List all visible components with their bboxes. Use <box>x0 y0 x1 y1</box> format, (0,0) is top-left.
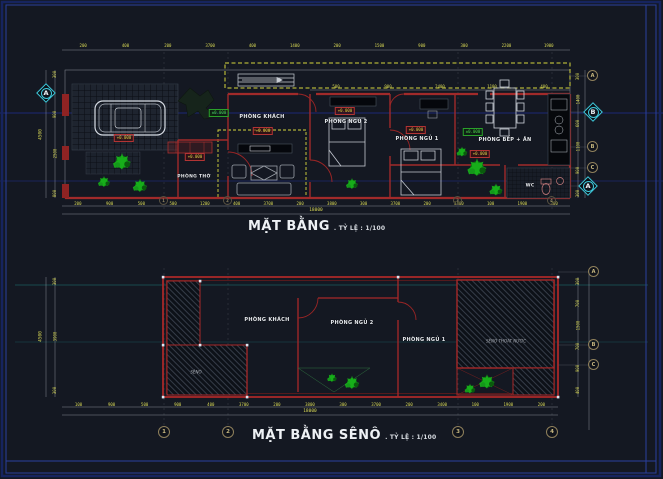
section-marker-a-right: A <box>579 177 597 195</box>
room-label-bed2: PHÒNG NGỦ 2 <box>325 119 368 125</box>
elevation-marker-zero: ±0.000 <box>209 109 229 117</box>
dim-value: 300 <box>575 278 580 285</box>
dim-total-p1: 18000 <box>62 208 570 213</box>
plan-top-title: MẶT BẰNG . TỶ LỆ : 1/100 <box>248 219 385 234</box>
dim-value: 1900 <box>528 43 570 49</box>
dim-value: 500 <box>310 84 362 90</box>
living-dashed-outline <box>218 130 306 198</box>
dim-value: 700 <box>575 300 580 307</box>
dim-value: 200 <box>284 201 316 207</box>
dim-value: 500 <box>126 201 158 207</box>
kitchen-counter <box>548 94 570 165</box>
wc-area <box>507 168 570 198</box>
room-label-kitchen: PHÒNG BẾP + ĂN <box>479 137 532 143</box>
axis-circle-a-p2: A <box>588 266 599 277</box>
axis-circle-2: 2 <box>222 426 234 438</box>
dim-value: 200 <box>525 402 558 408</box>
elevation-marker-bed2: +0.000 <box>335 107 355 115</box>
axis-circle-b-right: B <box>587 141 598 152</box>
seno-note-right: SÊNÔ THOÁT NƯỚC <box>486 339 526 344</box>
dim-value: 300 <box>443 43 485 49</box>
dim-value: 300 <box>52 387 57 394</box>
dim-value: 400 <box>194 402 227 408</box>
dim-value: 100 <box>459 402 492 408</box>
dim-value: 100 <box>62 402 95 408</box>
dim-value: 700 <box>575 343 580 350</box>
dim-value: 200 <box>411 201 443 207</box>
axis-circle-a-right: A <box>587 70 598 81</box>
dim-value: 1900 <box>492 402 525 408</box>
dim-chain-top: 2004002003700400140020015009003002200190… <box>62 43 570 49</box>
dim-value: 900 <box>575 365 580 372</box>
elevation-marker-yard: +0.000 <box>114 134 134 142</box>
dim-value: 3400 <box>426 402 459 408</box>
door-swings-top <box>228 94 410 182</box>
dim-value: 500 <box>128 402 161 408</box>
dim-chain-bottom-p1: 2009005005001200400370020038003003700200… <box>62 201 570 207</box>
yard-paving <box>86 152 140 174</box>
dim-value: 400 <box>575 387 580 394</box>
dim-value: 200 <box>316 43 358 49</box>
dim-value: 3700 <box>380 201 412 207</box>
elevation-marker-kitchen: +0.000 <box>470 150 490 158</box>
dim-chain-right-p2: 3007001500700900400 <box>573 279 582 393</box>
dim-chain-bottom-p2: 1009005009004003700200380030037002003400… <box>62 402 558 408</box>
section-letter: A <box>583 181 594 192</box>
axis-circle-3: 3 <box>452 426 464 438</box>
seno-hatch-left-block <box>167 345 247 395</box>
dim-value: 3700 <box>253 201 285 207</box>
dim-value: 1100 <box>466 84 518 90</box>
trees-top-plan <box>98 147 503 196</box>
plan-top-geometry <box>46 50 585 214</box>
seno-hatch-small <box>513 368 554 395</box>
section-letter: A <box>41 88 52 99</box>
seno-label-bed2: PHÒNG NGỦ 2 <box>331 320 374 326</box>
dim-value: 900 <box>401 43 443 49</box>
plan-title-scale: . TỶ LỆ : 1/100 <box>334 225 385 232</box>
dim-value: 900 <box>52 111 57 118</box>
dim-value: 300 <box>52 71 57 78</box>
elevation-marker-worship: +0.000 <box>185 153 205 161</box>
dim-value: 300 <box>327 402 360 408</box>
dim-value: 1500 <box>358 43 400 49</box>
dim-value: 3700 <box>189 43 231 49</box>
elevation-marker-zero-2: ±0.000 <box>463 128 483 136</box>
plan-bottom-title: MẶT BẰNG SÊNÔ . TỶ LỆ : 1/100 <box>252 428 436 443</box>
dim-value: 200 <box>62 43 104 49</box>
seno-note-left: SÊNÔ <box>190 370 201 375</box>
room-label-bed1: PHÒNG NGỦ 1 <box>396 136 439 142</box>
dim-total-p2: 18000 <box>62 409 558 414</box>
axis-circle-4-top: 4 <box>547 196 556 205</box>
dim-value: 2200 <box>485 43 527 49</box>
axis-circle-4: 4 <box>546 426 558 438</box>
elevation-marker-living: +0.000 <box>253 127 273 135</box>
dim-value: 3800 <box>316 201 348 207</box>
dim-value: 100 <box>475 201 507 207</box>
seno-label-living: PHÒNG KHÁCH <box>244 317 289 323</box>
dim-value: 1400 <box>274 43 316 49</box>
planter-boxes <box>298 368 513 395</box>
plan-title-scale: . TỶ LỆ : 1/100 <box>385 434 436 441</box>
dim-value: 200 <box>62 201 94 207</box>
dim-value: 3900 <box>52 331 57 341</box>
dim-value: 400 <box>231 43 273 49</box>
seno-interior-walls <box>247 277 398 397</box>
dim-value: 300 <box>575 73 580 80</box>
axis-circle-c-p2: C <box>588 359 599 370</box>
dim-value: 2500 <box>52 149 57 159</box>
axis-circle-3-top: 3 <box>453 196 462 205</box>
dim-value: 800 <box>52 190 57 197</box>
elevation-marker-bed1: +0.000 <box>406 126 426 134</box>
dim-value: 3700 <box>227 402 260 408</box>
dim-value: 3800 <box>293 402 326 408</box>
seno-hatch-left-strip <box>167 281 200 345</box>
section-letter: B <box>588 107 599 118</box>
dim-value: 900 <box>362 84 414 90</box>
axis-circle-2-top: 2 <box>223 196 232 205</box>
plan-title-text: MẶT BẰNG SÊNÔ <box>252 428 381 443</box>
seno-label-bed1: PHÒNG NGỦ 1 <box>403 337 446 343</box>
axis-circle-b-p2: B <box>588 339 599 350</box>
dim-value: 900 <box>161 402 194 408</box>
dim-value: 3700 <box>360 402 393 408</box>
entry-steps <box>238 74 294 86</box>
room-label-worship: PHÒNG THỜ <box>177 175 210 180</box>
dim-left-total-p2: 4500 <box>39 326 44 348</box>
dim-value: 1200 <box>189 201 221 207</box>
dim-chain-left-p2: 3003900300 <box>50 279 59 393</box>
altar <box>168 142 212 153</box>
axis-circle-1-top: 1 <box>159 196 168 205</box>
dim-value: 900 <box>575 166 580 173</box>
dim-value: 2400 <box>414 84 466 90</box>
trees-bottom-plan <box>327 373 495 393</box>
dim-chain-mid: 50090024001100400 <box>310 84 570 90</box>
dim-value: 1100 <box>575 142 580 152</box>
dim-value: 900 <box>94 201 126 207</box>
dim-value: 200 <box>393 402 426 408</box>
plan-title-text: MẶT BẰNG <box>248 219 330 234</box>
cad-viewport[interactable]: PHÒNG KHÁCH PHÒNG NGỦ 2 PHÒNG NGỦ 1 PHÒN… <box>0 0 663 479</box>
dim-value: 200 <box>260 402 293 408</box>
seno-hatch-right-block <box>457 280 554 368</box>
dim-value: 600 <box>575 120 580 127</box>
gate-piers <box>62 94 69 198</box>
dim-value: 400 <box>104 43 146 49</box>
dim-value: 300 <box>348 201 380 207</box>
dim-value: 1500 <box>575 320 580 330</box>
room-label-living: PHÒNG KHÁCH <box>239 114 284 120</box>
section-marker-a-left: A <box>37 84 55 102</box>
dim-value: 400 <box>518 84 570 90</box>
axis-circle-1: 1 <box>158 426 170 438</box>
living-furniture <box>232 144 294 195</box>
axis-circle-c-right: C <box>587 162 598 173</box>
section-marker-b-right: B <box>584 103 602 121</box>
dim-value: 200 <box>147 43 189 49</box>
dim-value: 300 <box>52 278 57 285</box>
room-label-wc: WC <box>526 184 535 189</box>
dim-value: 1900 <box>507 201 539 207</box>
dim-value: 1400 <box>575 95 580 105</box>
dim-value: 900 <box>95 402 128 408</box>
dim-left-total: 4500 <box>39 124 44 146</box>
